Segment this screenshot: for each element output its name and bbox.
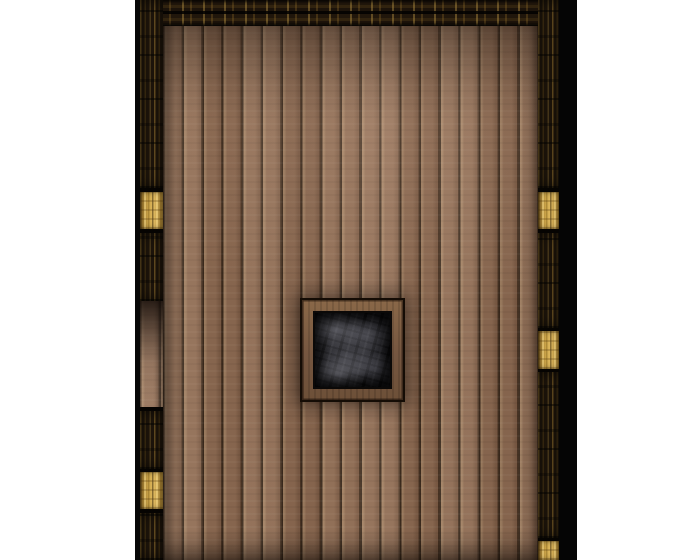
wall-top — [140, 0, 560, 26]
pit-rock-opening — [313, 311, 392, 389]
wall-left — [140, 0, 163, 560]
gold-door-segment — [140, 472, 163, 509]
map-outline-left — [135, 0, 140, 560]
outer-shadow-right — [559, 0, 577, 560]
wall-timber-segment — [538, 372, 559, 538]
doorway-opening — [140, 301, 163, 407]
wall-right — [538, 0, 559, 560]
gold-door-segment — [538, 541, 559, 560]
gold-door-segment — [140, 192, 163, 229]
page-background — [0, 0, 700, 560]
wall-timber-segment — [140, 0, 163, 188]
trapdoor-hatch — [302, 300, 403, 400]
gold-door-segment — [538, 331, 559, 369]
gold-door-segment — [538, 192, 559, 229]
wall-timber-segment — [538, 233, 559, 328]
wall-timber-segment — [140, 233, 163, 301]
wall-timber-segment — [538, 0, 559, 188]
wall-timber-segment — [140, 513, 163, 560]
wall-timber-segment — [140, 411, 163, 469]
wood-floor — [163, 0, 538, 560]
